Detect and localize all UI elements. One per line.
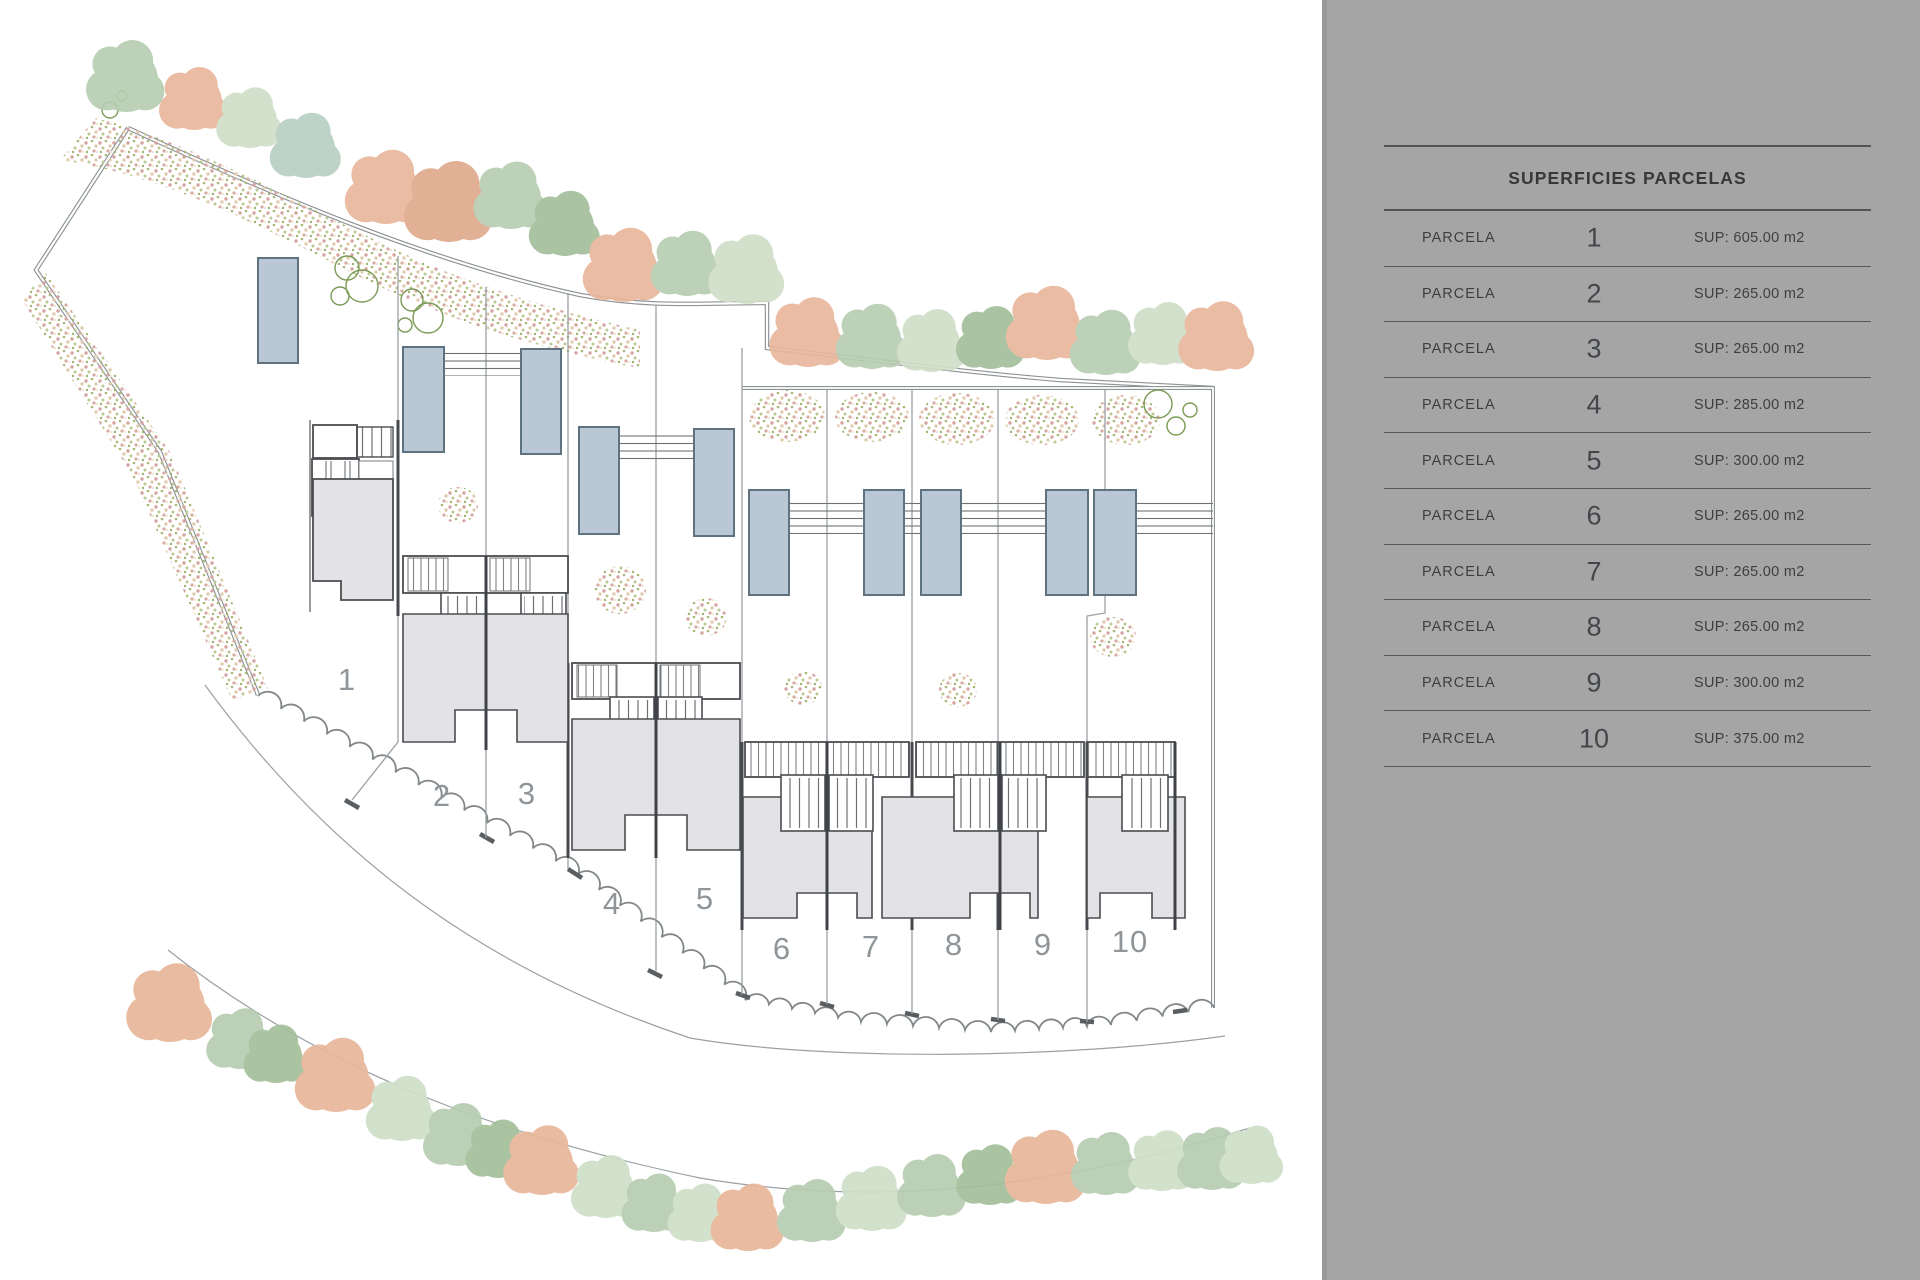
parcel-number: 7 [1559, 556, 1629, 587]
bottom-tree-row [126, 963, 1283, 1251]
surface-panel: SUPERFICIES PARCELAS PARCELA 1 SUP: 605.… [1322, 0, 1920, 1280]
table-row: PARCELA 10 SUP: 375.00 m2 [1384, 711, 1871, 767]
pool-3 [521, 349, 561, 454]
parcel-label: PARCELA [1422, 675, 1496, 691]
parcel-label: PARCELA [1422, 564, 1496, 580]
parcel-label: PARCELA [1422, 286, 1496, 302]
parcel-label: PARCELA [1422, 508, 1496, 524]
parcel-number: 4 [1559, 390, 1629, 421]
house-1 [310, 420, 393, 612]
pool-4 [579, 427, 619, 534]
parcel-surface: SUP: 265.00 m2 [1694, 508, 1805, 524]
table-row: PARCELA 8 SUP: 265.00 m2 [1384, 600, 1871, 656]
parcel-number: 8 [1559, 612, 1629, 643]
pool-1 [258, 258, 298, 363]
page: 1 2 3 4 5 6 7 8 9 10 SUPERFICIES PARCELA… [0, 0, 1920, 1280]
parcel-number: 5 [1559, 445, 1629, 476]
pool-5 [694, 429, 734, 536]
pool-2 [403, 347, 444, 452]
table-row: PARCELA 3 SUP: 265.00 m2 [1384, 322, 1871, 378]
houses-6-10 [743, 742, 1185, 930]
table-row: PARCELA 2 SUP: 265.00 m2 [1384, 267, 1871, 323]
house-2-3 [403, 556, 568, 750]
parcel-surface: SUP: 265.00 m2 [1694, 619, 1805, 635]
parcel-label: PARCELA [1422, 341, 1496, 357]
plan-label-parcel-10: 10 [1112, 924, 1148, 959]
pool-10 [1094, 490, 1136, 595]
table-row: PARCELA 9 SUP: 300.00 m2 [1384, 656, 1871, 712]
parcel-surface: SUP: 605.00 m2 [1694, 230, 1805, 246]
parcel-surface: SUP: 300.00 m2 [1694, 675, 1805, 691]
parcel-label: PARCELA [1422, 731, 1496, 747]
parcel-number: 3 [1559, 334, 1629, 365]
parcel-label: PARCELA [1422, 619, 1496, 635]
surfaces-table: SUPERFICIES PARCELAS PARCELA 1 SUP: 605.… [1384, 145, 1871, 767]
table-row: PARCELA 6 SUP: 265.00 m2 [1384, 489, 1871, 545]
parcel-label: PARCELA [1422, 397, 1496, 413]
parcel-label: PARCELA [1422, 230, 1496, 246]
parcel-surface: SUP: 375.00 m2 [1694, 731, 1805, 747]
table-row: PARCELA 7 SUP: 265.00 m2 [1384, 545, 1871, 601]
plan-label-parcel-6: 6 [773, 931, 791, 966]
house-4-5 [572, 663, 740, 858]
table-header: SUPERFICIES PARCELAS [1384, 145, 1871, 211]
parcel-surface: SUP: 300.00 m2 [1694, 453, 1805, 469]
pool-6 [749, 490, 789, 595]
parcel-surface: SUP: 265.00 m2 [1694, 341, 1805, 357]
plan-label-parcel-9: 9 [1034, 927, 1052, 962]
table-row: PARCELA 1 SUP: 605.00 m2 [1384, 211, 1871, 267]
pool-9 [1046, 490, 1088, 595]
plan-label-parcel-7: 7 [862, 929, 880, 964]
parcel-number: 2 [1559, 278, 1629, 309]
parcel-number: 9 [1559, 668, 1629, 699]
plan-label-parcel-1: 1 [338, 662, 356, 697]
panel-edge [1322, 0, 1327, 1280]
pool-7 [864, 490, 904, 595]
parcel-number: 10 [1559, 723, 1629, 754]
table-row: PARCELA 4 SUP: 285.00 m2 [1384, 378, 1871, 434]
site-plan: 1 2 3 4 5 6 7 8 9 10 [0, 0, 1322, 1280]
table-row: PARCELA 5 SUP: 300.00 m2 [1384, 433, 1871, 489]
plan-label-parcel-4: 4 [603, 886, 621, 921]
parcel-surface: SUP: 265.00 m2 [1694, 564, 1805, 580]
plan-label-parcel-3: 3 [518, 776, 536, 811]
parcel-number: 6 [1559, 501, 1629, 532]
parcel-number: 1 [1559, 223, 1629, 254]
plan-label-parcel-5: 5 [696, 881, 714, 916]
plan-label-parcel-2: 2 [433, 778, 451, 813]
parcel-surface: SUP: 265.00 m2 [1694, 286, 1805, 302]
parcel-label: PARCELA [1422, 453, 1496, 469]
table-title: SUPERFICIES PARCELAS [1508, 168, 1747, 189]
pool-8 [921, 490, 961, 595]
parcel-surface: SUP: 285.00 m2 [1694, 397, 1805, 413]
plan-label-parcel-8: 8 [945, 927, 963, 962]
